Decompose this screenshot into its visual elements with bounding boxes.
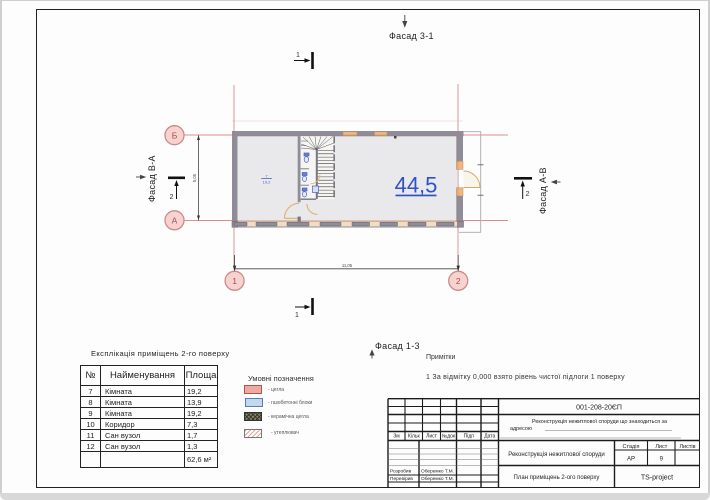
svg-text:Перевірив: Перевірив bbox=[390, 476, 413, 482]
svg-text:TS-project: TS-project bbox=[641, 475, 673, 482]
svg-text:адресою: адресою bbox=[510, 426, 532, 432]
svg-text:№док: №док bbox=[442, 434, 456, 440]
svg-text:Листів: Листів bbox=[679, 444, 695, 450]
svg-text:Зм: Зм bbox=[393, 434, 400, 440]
svg-text:Реконструкція нежитлової спору: Реконструкція нежитлової споруди bbox=[508, 452, 605, 458]
svg-text:001-208-20ЄП: 001-208-20ЄП bbox=[576, 405, 622, 412]
svg-text:Лист: Лист bbox=[426, 434, 438, 440]
svg-text:План приміщень 2-ого поверху: План приміщень 2-ого поверху bbox=[514, 475, 600, 481]
svg-text:9: 9 bbox=[660, 457, 664, 463]
svg-text:Оберемко Т.М.: Оберемко Т.М. bbox=[421, 476, 454, 482]
svg-text:Кільк: Кільк bbox=[408, 434, 421, 440]
svg-text:Оберемко Т.М.: Оберемко Т.М. bbox=[421, 469, 454, 475]
svg-text:АР: АР bbox=[627, 457, 635, 463]
svg-text:Розробив: Розробив bbox=[390, 469, 412, 475]
svg-text:Реконструкція нежитлової спору: Реконструкція нежитлової споруди що знах… bbox=[532, 419, 667, 425]
svg-text:Лист: Лист bbox=[655, 444, 667, 450]
svg-text:Підп: Підп bbox=[464, 434, 475, 440]
svg-text:Дата: Дата bbox=[484, 434, 495, 440]
svg-text:Стадія: Стадія bbox=[623, 444, 640, 450]
